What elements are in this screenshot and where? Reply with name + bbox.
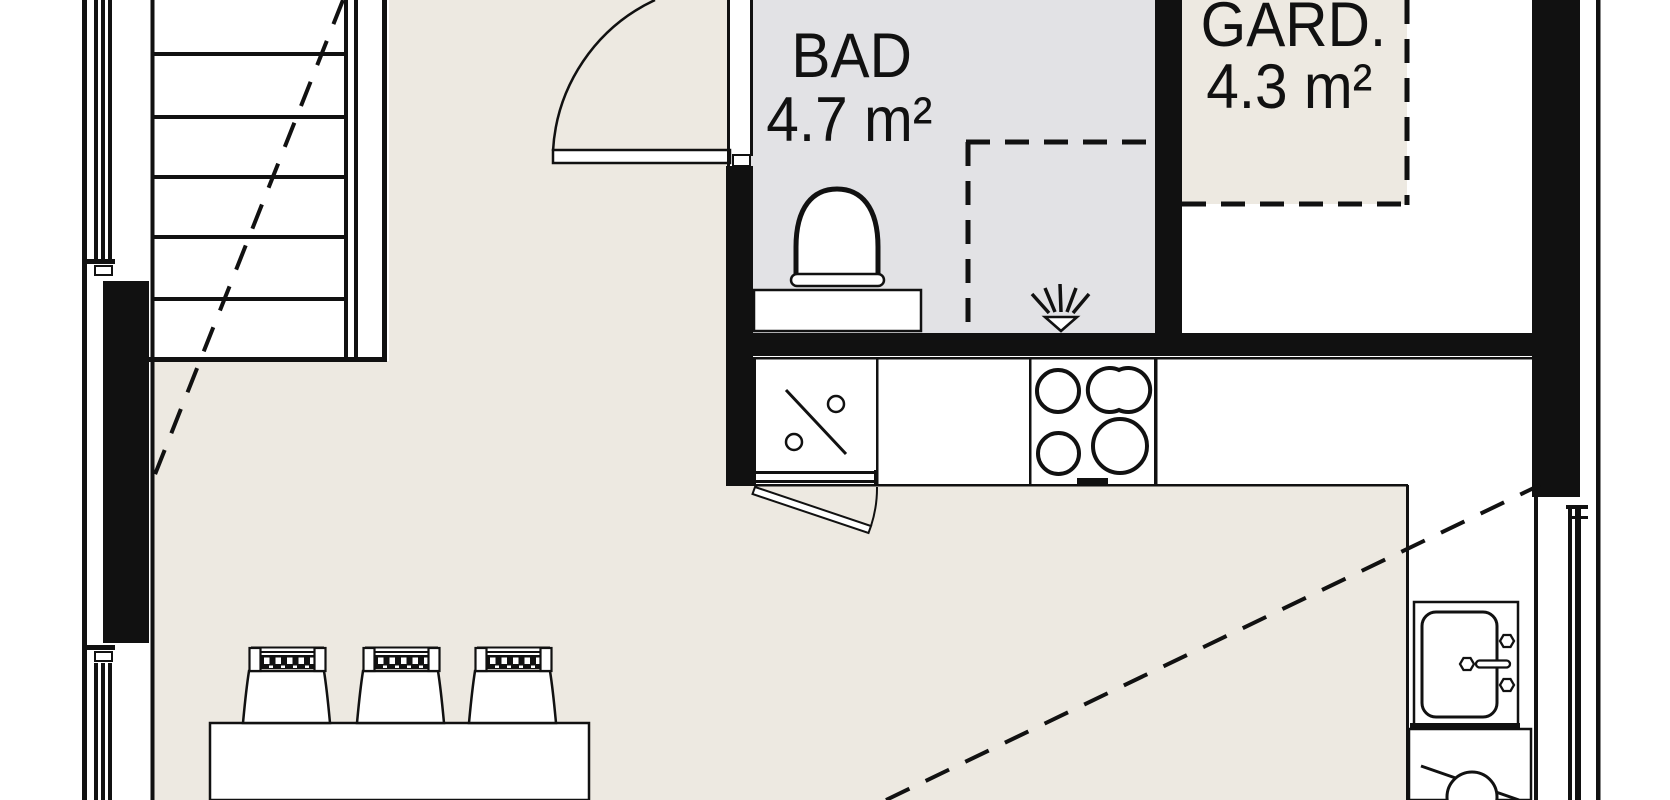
svg-text:BAD: BAD bbox=[791, 20, 911, 90]
svg-text:4.3 m²: 4.3 m² bbox=[1206, 51, 1372, 121]
svg-text:4.7 m²: 4.7 m² bbox=[766, 84, 932, 154]
